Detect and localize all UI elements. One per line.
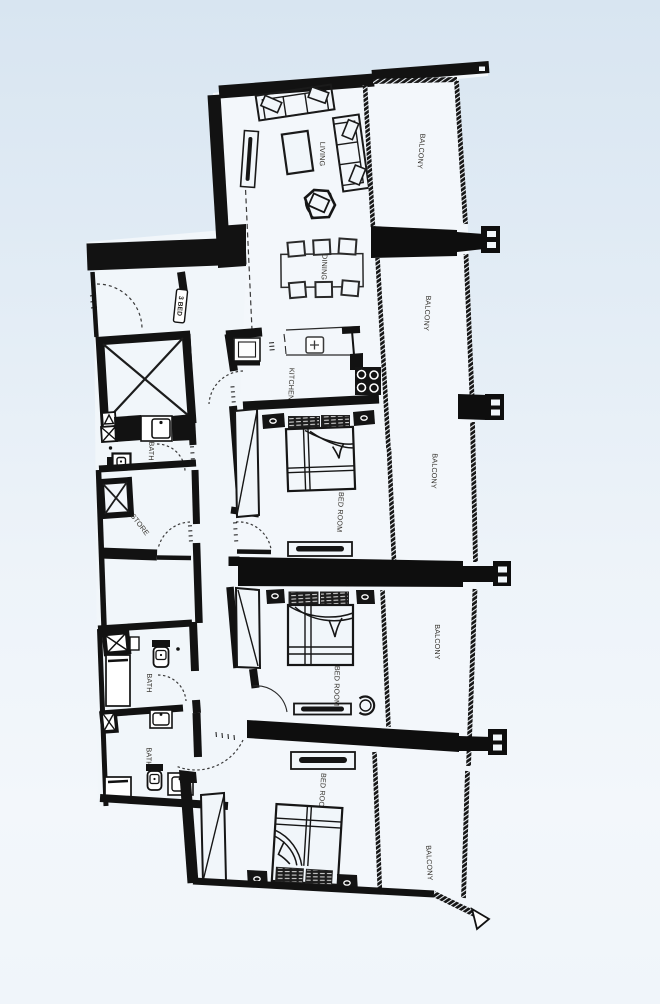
svg-text:BED ROOM: BED ROOM <box>332 666 342 706</box>
svg-text:DINING: DINING <box>320 254 330 281</box>
svg-text:LIVING: LIVING <box>318 142 327 167</box>
svg-text:BATH: BATH <box>144 747 153 766</box>
svg-text:BATH: BATH <box>147 441 157 461</box>
svg-text:BALCONY: BALCONY <box>424 845 435 881</box>
svg-text:BALCONY: BALCONY <box>433 624 442 659</box>
svg-text:BALCONY: BALCONY <box>429 453 439 489</box>
svg-text:BATH: BATH <box>145 673 154 692</box>
svg-text:KITCHEN: KITCHEN <box>286 368 296 401</box>
